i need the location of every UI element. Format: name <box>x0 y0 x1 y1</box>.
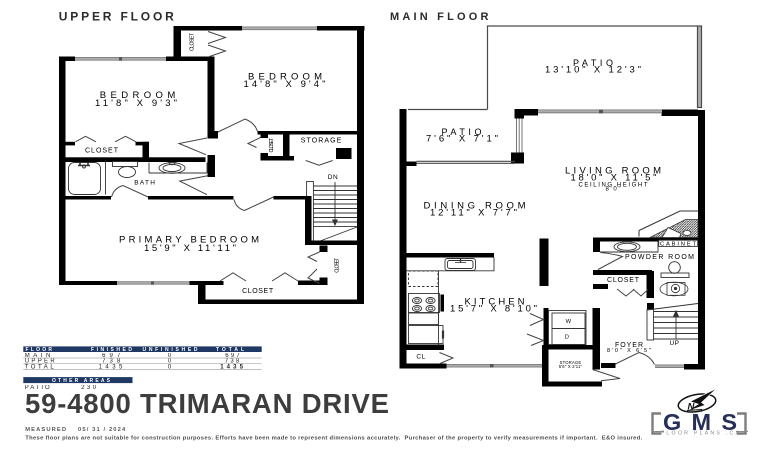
svg-text:MAIN FLOOR: MAIN FLOOR <box>390 11 489 23</box>
svg-text:DN: DN <box>328 174 338 181</box>
svg-text:BATH: BATH <box>134 180 155 187</box>
svg-text:CLOSET: CLOSET <box>607 277 640 284</box>
svg-text:8'0": 8'0" <box>606 187 621 193</box>
svg-text:STORAGE: STORAGE <box>301 138 342 145</box>
svg-text:CLOSET: CLOSET <box>335 257 341 273</box>
svg-text:POWDER ROOM: POWDER ROOM <box>625 254 694 261</box>
svg-text:CL: CL <box>416 354 425 361</box>
svg-text:W: W <box>566 319 572 325</box>
svg-text:CLOSET: CLOSET <box>190 32 196 51</box>
svg-text:5'6" X 2'11": 5'6" X 2'11" <box>559 364 583 369</box>
svg-text:These floor plans are not suit: These floor plans are not suitable for c… <box>25 436 642 442</box>
svg-text:14'8" X 9'4": 14'8" X 9'4" <box>244 79 326 90</box>
svg-text:D: D <box>565 335 570 341</box>
svg-text:CLOSET: CLOSET <box>242 288 274 295</box>
svg-text:CLOSET: CLOSET <box>85 148 119 155</box>
svg-text:OTHER AREAS: OTHER AREAS <box>52 378 111 384</box>
svg-text:59-4800 TRIMARAN DRIVE: 59-4800 TRIMARAN DRIVE <box>25 388 389 419</box>
svg-text:UPPER FLOOR: UPPER FLOOR <box>59 9 174 23</box>
svg-text:11'8" X 9'3": 11'8" X 9'3" <box>95 98 177 109</box>
svg-text:CLOSET: CLOSET <box>269 137 275 152</box>
svg-text:UP: UP <box>669 340 679 347</box>
